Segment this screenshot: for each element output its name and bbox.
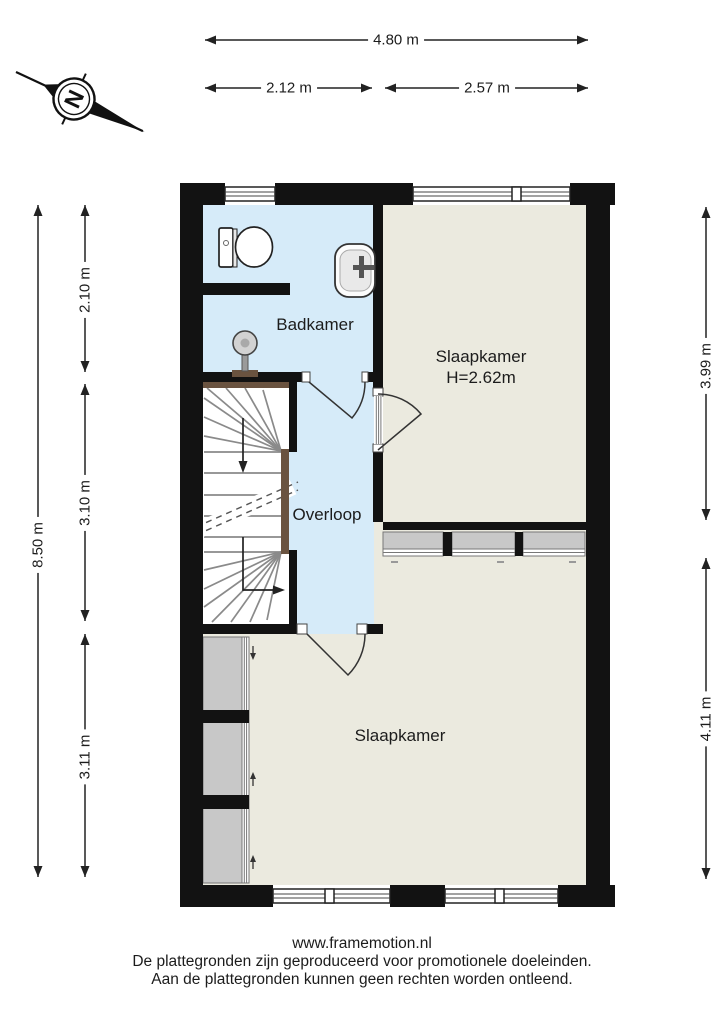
stairs — [196, 381, 298, 634]
window-bottom-right — [445, 889, 558, 903]
dim-height-total: 8.50 m — [30, 517, 47, 573]
footer-disclaimer-2: Aan de plattegronden kunnen geen rechten… — [0, 971, 724, 989]
dim-right-bottom: 4.11 m — [698, 692, 715, 747]
floorplan-page: N Badkamer Slaapkamer H=2.62m Overloop S… — [0, 0, 724, 1024]
dim-width-left: 2.12 m — [261, 80, 317, 97]
room-label-bedroom-top: Slaapkamer — [436, 347, 527, 367]
handrail — [281, 449, 289, 554]
ceiling-height-note: H=2.62m — [446, 368, 515, 388]
room-label-bedroom-bottom: Slaapkamer — [355, 726, 446, 746]
window-bottom-left — [273, 889, 390, 903]
closet-left — [203, 637, 249, 883]
stair-edge — [203, 381, 290, 388]
sink-icon — [335, 244, 375, 297]
dim-height-bottom: 3.11 m — [77, 730, 94, 785]
dim-height-top: 2.10 m — [77, 262, 94, 318]
toilet-icon — [219, 227, 273, 267]
dim-right-top: 3.99 m — [698, 338, 715, 394]
dim-width-right: 2.57 m — [459, 80, 515, 97]
window-top-left — [225, 187, 275, 201]
window-top-right — [413, 187, 570, 201]
compass-icon: N — [4, 47, 156, 158]
room-label-landing: Overloop — [293, 505, 362, 525]
dim-height-mid: 3.10 m — [77, 475, 94, 531]
footer-website: www.framemotion.nl — [0, 935, 724, 953]
dim-width-total: 4.80 m — [368, 32, 424, 49]
room-label-bathroom: Badkamer — [276, 315, 353, 335]
footer-disclaimer-1: De plattegronden zijn geproduceerd voor … — [0, 953, 724, 971]
floorplan-canvas: N — [0, 0, 724, 1024]
